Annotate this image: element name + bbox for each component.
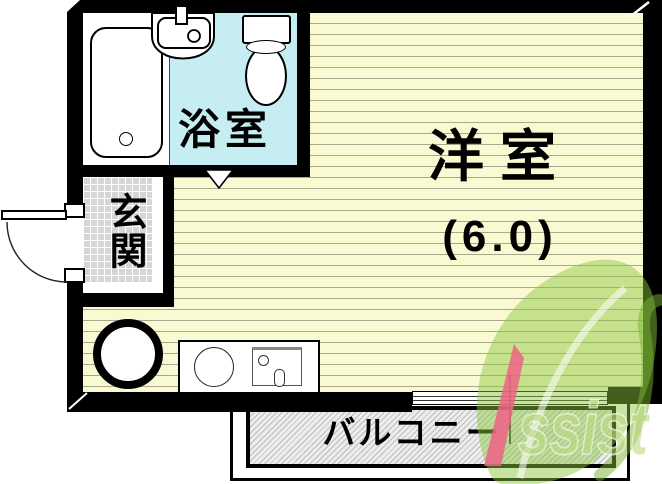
floor-plan: 浴室 玄関 洋室 (6.0) バルコニー ssist (0, 0, 662, 484)
entrance-label: 玄関 (99, 192, 143, 270)
toilet-bowl (245, 46, 287, 106)
wall-right (643, 0, 662, 404)
round-fixture (93, 319, 163, 389)
bathtub-drain-icon (119, 132, 133, 146)
door-jamb-bottom (64, 268, 85, 283)
kitchen-sink-faucet-icon (274, 369, 285, 387)
entrance-door-leaf (1, 210, 67, 220)
door-jamb-top (64, 203, 85, 218)
wall-top (67, 0, 662, 13)
sliding-window (412, 391, 608, 405)
balcony-label: バルコニー (262, 416, 562, 451)
window-track-line (413, 396, 607, 397)
main-room-size-label: (6.0) (350, 214, 650, 260)
wall-bottom-right (608, 387, 643, 404)
main-room-label: 洋室 (350, 128, 650, 187)
kitchen-sink-drain-icon (258, 355, 269, 366)
burner-icon (194, 347, 234, 387)
wall-bathroom-right (297, 13, 310, 177)
entrance-door-swing-arc (7, 222, 67, 282)
window-track-line (413, 400, 607, 401)
wall-left-upper (67, 0, 83, 205)
wall-entrance-right (163, 177, 174, 307)
entrance-step (152, 177, 163, 293)
wall-entrance-bottom (67, 293, 174, 307)
bathroom-label: 浴室 (160, 108, 290, 152)
entrance-step (83, 283, 163, 293)
toilet-seat (246, 40, 286, 54)
wall-bottom (67, 392, 412, 412)
wall-bathroom-bottom (83, 165, 310, 177)
